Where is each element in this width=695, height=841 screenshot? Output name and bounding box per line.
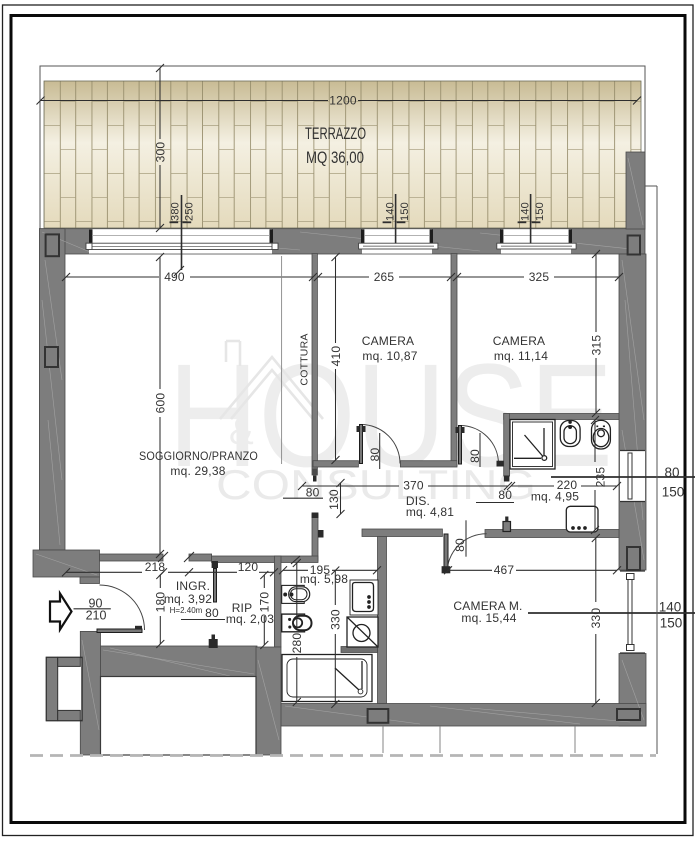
svg-text:80: 80 [498, 488, 512, 502]
svg-text:mq. 11,14: mq. 11,14 [494, 349, 548, 363]
svg-text:490: 490 [164, 270, 185, 284]
svg-text:150: 150 [660, 616, 683, 631]
svg-text:80: 80 [664, 465, 679, 480]
svg-text:CONSULTING: CONSULTING [216, 461, 536, 508]
svg-text:80: 80 [453, 538, 467, 552]
svg-text:mq. 4,81: mq. 4,81 [406, 505, 454, 519]
svg-text:H=2.40m: H=2.40m [170, 606, 203, 615]
svg-text:150: 150 [534, 202, 546, 221]
svg-text:INGR.: INGR. [176, 579, 210, 593]
svg-text:210: 210 [86, 609, 107, 623]
svg-text:mq. 3,92: mq. 3,92 [164, 592, 212, 606]
svg-text:380: 380 [170, 202, 182, 221]
svg-text:218: 218 [145, 560, 166, 574]
svg-text:mq. 15,44: mq. 15,44 [461, 611, 516, 625]
svg-text:370: 370 [403, 479, 424, 493]
svg-text:1200: 1200 [329, 94, 357, 108]
svg-text:150: 150 [399, 202, 411, 221]
svg-text:CAMERA: CAMERA [362, 334, 415, 348]
svg-text:180: 180 [154, 592, 168, 613]
svg-text:130: 130 [327, 489, 341, 510]
svg-text:80: 80 [205, 606, 219, 620]
svg-text:CAMERA: CAMERA [493, 334, 546, 348]
svg-text:250: 250 [183, 202, 195, 221]
svg-text:140: 140 [659, 600, 682, 615]
svg-text:410: 410 [329, 346, 343, 367]
svg-text:120: 120 [238, 560, 259, 574]
svg-text:80: 80 [306, 486, 320, 500]
svg-text:mq. 10,87: mq. 10,87 [362, 349, 417, 363]
svg-text:mq. 4,95: mq. 4,95 [531, 490, 579, 504]
svg-text:mq. 2,03: mq. 2,03 [226, 612, 274, 626]
svg-text:80: 80 [468, 449, 482, 463]
svg-text:MQ 36,00: MQ 36,00 [306, 149, 364, 167]
svg-text:265: 265 [374, 270, 395, 284]
svg-text:140: 140 [385, 202, 397, 221]
svg-text:467: 467 [494, 563, 515, 577]
svg-text:140: 140 [520, 202, 532, 221]
svg-text:150: 150 [662, 485, 685, 500]
svg-text:600: 600 [153, 393, 167, 414]
svg-text:235: 235 [593, 467, 607, 488]
svg-text:330: 330 [589, 608, 603, 629]
svg-text:mq. 5,98: mq. 5,98 [300, 572, 348, 586]
svg-text:&: & [229, 411, 254, 452]
svg-text:SOGGIORNO/PRANZO: SOGGIORNO/PRANZO [139, 449, 258, 463]
svg-text:315: 315 [589, 335, 603, 356]
svg-text:TERRAZZO: TERRAZZO [305, 125, 366, 143]
svg-text:330: 330 [329, 609, 343, 630]
svg-text:COTTURA: COTTURA [299, 333, 311, 385]
svg-text:80: 80 [368, 448, 382, 462]
svg-text:280: 280 [290, 633, 304, 654]
svg-text:300: 300 [153, 142, 167, 163]
svg-text:170: 170 [258, 592, 272, 613]
svg-text:325: 325 [529, 270, 550, 284]
svg-text:mq. 29,38: mq. 29,38 [170, 464, 225, 478]
